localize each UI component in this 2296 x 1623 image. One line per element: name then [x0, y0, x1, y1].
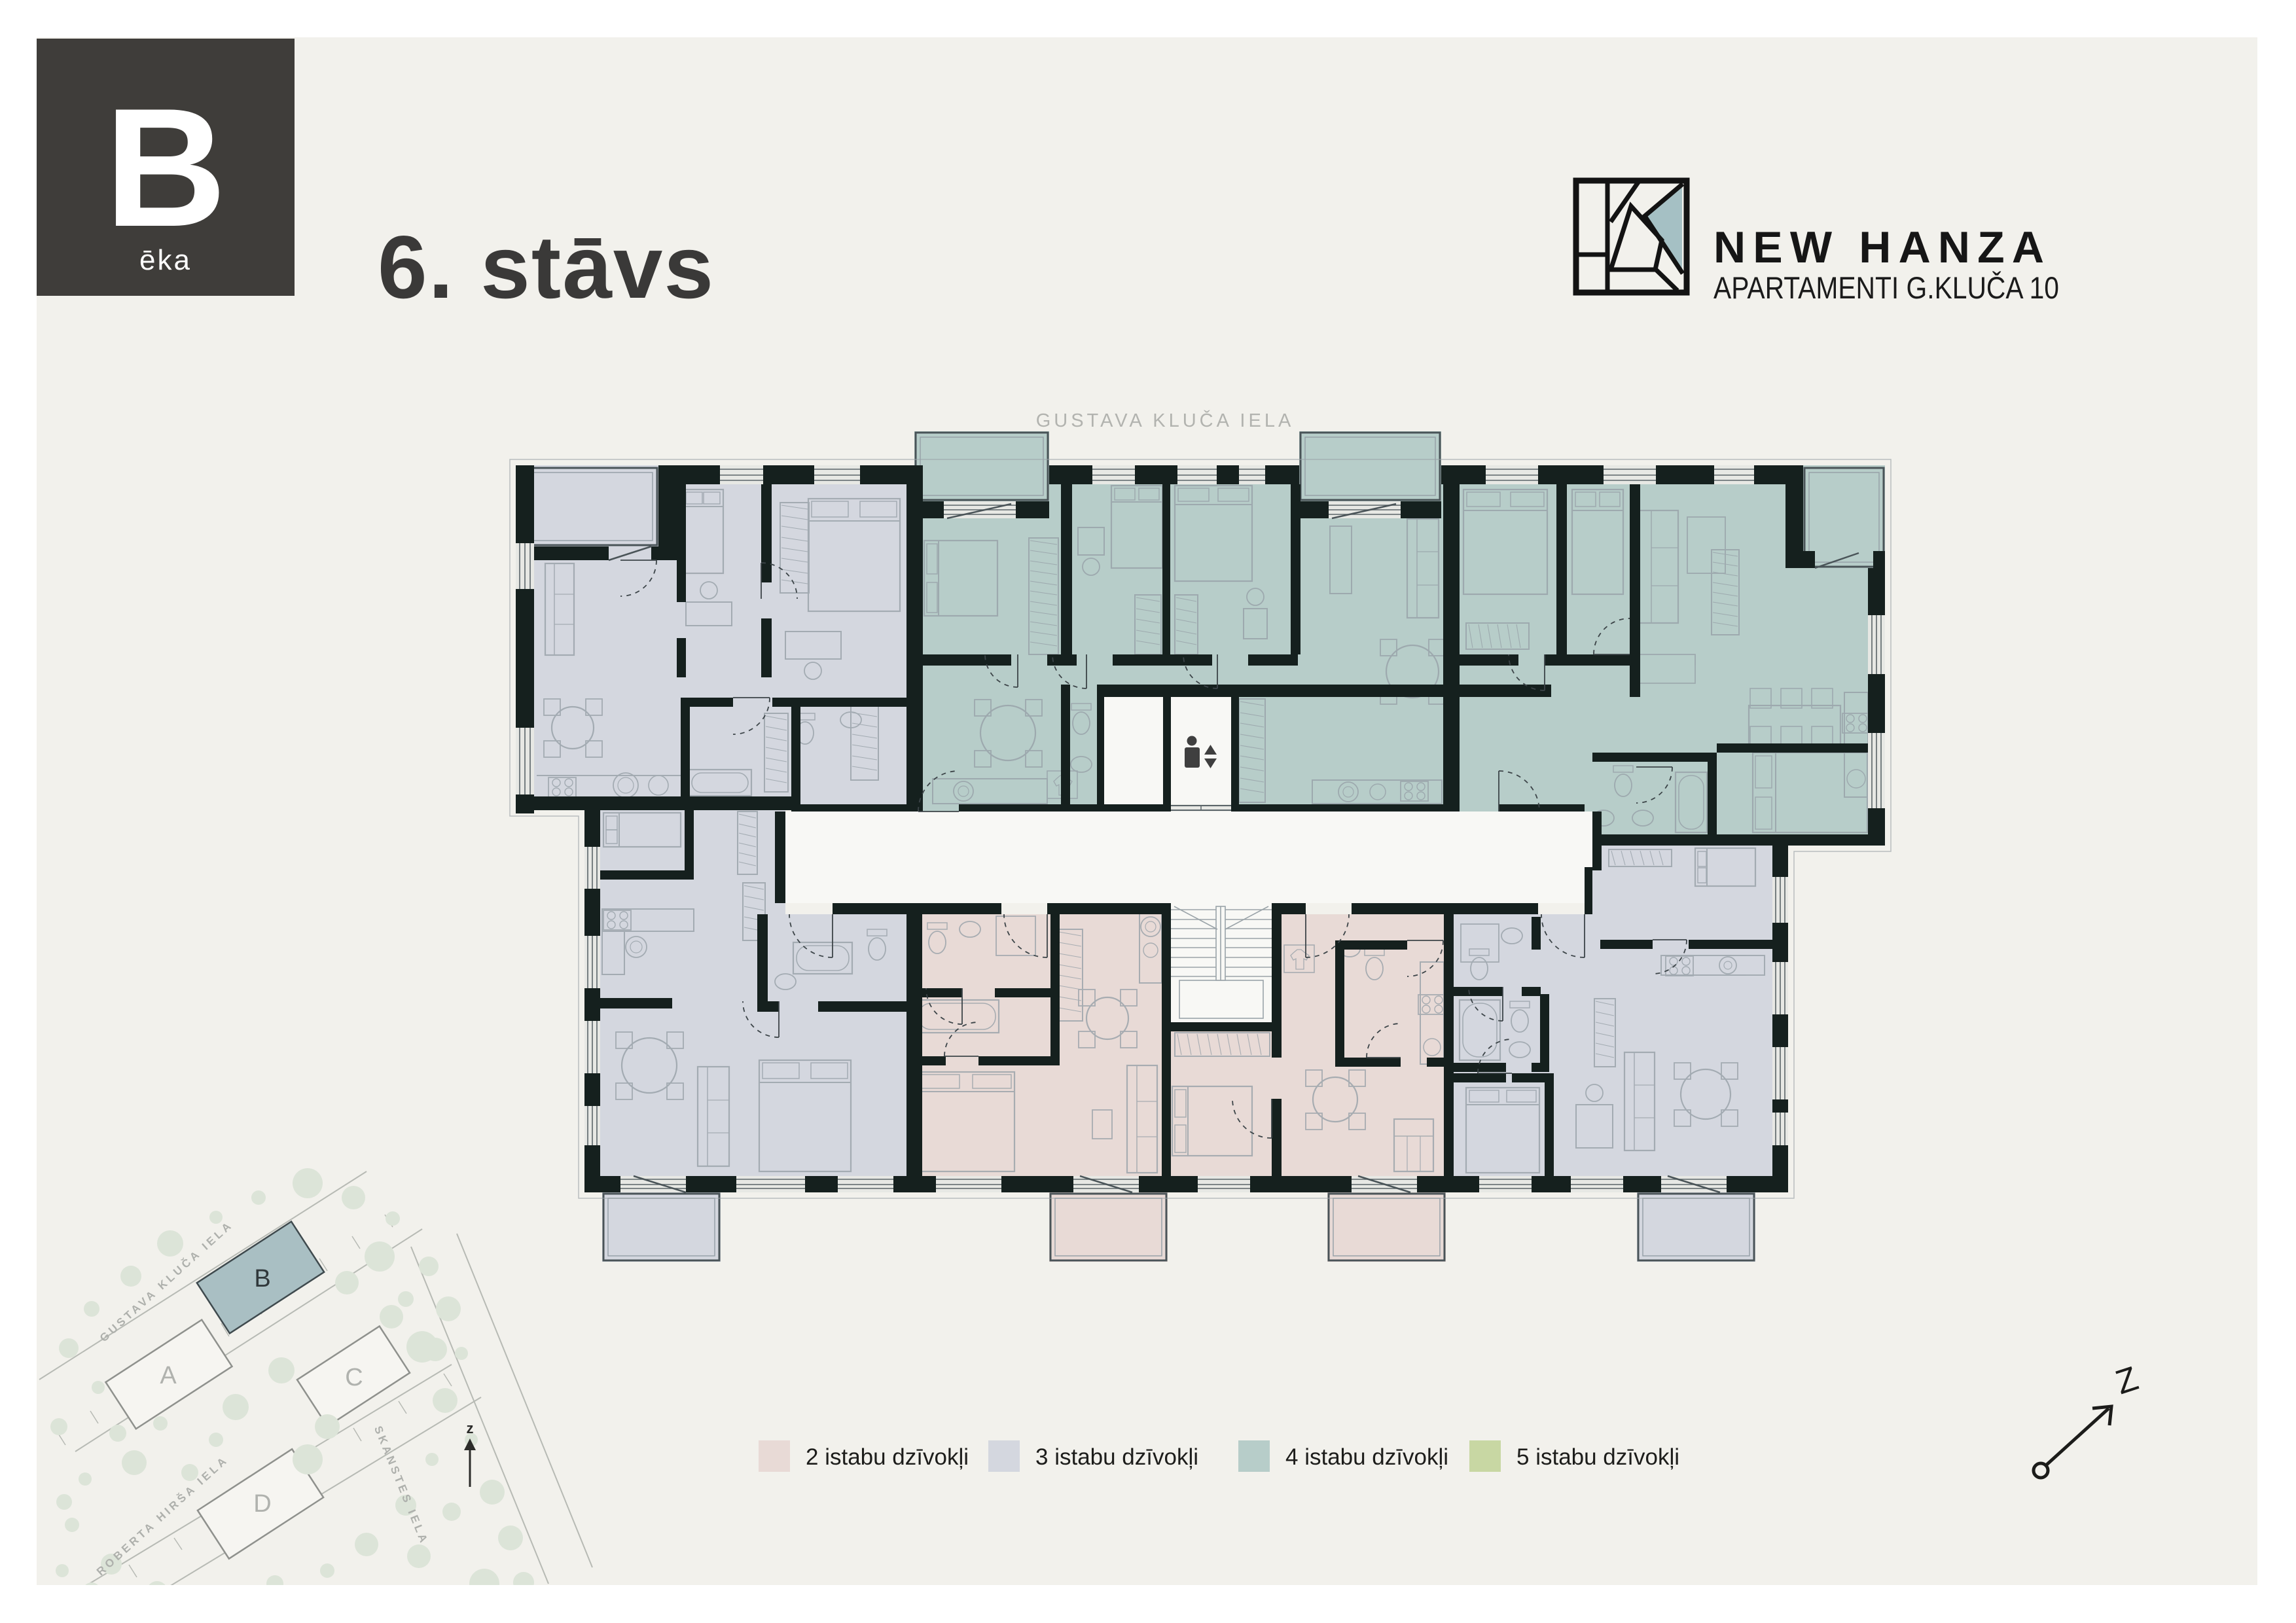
svg-text:4 istabu dzīvokļi: 4 istabu dzīvokļi [1285, 1444, 1448, 1470]
svg-text:B: B [105, 73, 226, 262]
svg-text:ēka: ēka [139, 244, 192, 276]
svg-text:NEW HANZA: NEW HANZA [1713, 223, 2053, 272]
svg-text:C: C [345, 1364, 363, 1391]
svg-text:2 istabu dzīvokļi: 2 istabu dzīvokļi [806, 1444, 969, 1470]
svg-text:5 istabu dzīvokļi: 5 istabu dzīvokļi [1516, 1444, 1679, 1470]
svg-text:GUSTAVA KLUČA IELA: GUSTAVA KLUČA IELA [1036, 409, 1295, 431]
svg-text:APARTAMENTI G.KLUČA 10: APARTAMENTI G.KLUČA 10 [1713, 270, 2059, 305]
svg-text:D: D [253, 1490, 271, 1518]
svg-text:B: B [254, 1265, 270, 1293]
svg-text:A: A [160, 1362, 177, 1389]
svg-text:3 istabu dzīvokļi: 3 istabu dzīvokļi [1035, 1444, 1198, 1470]
svg-text:6. stāvs: 6. stāvs [378, 217, 715, 317]
svg-text:z: z [467, 1420, 474, 1436]
